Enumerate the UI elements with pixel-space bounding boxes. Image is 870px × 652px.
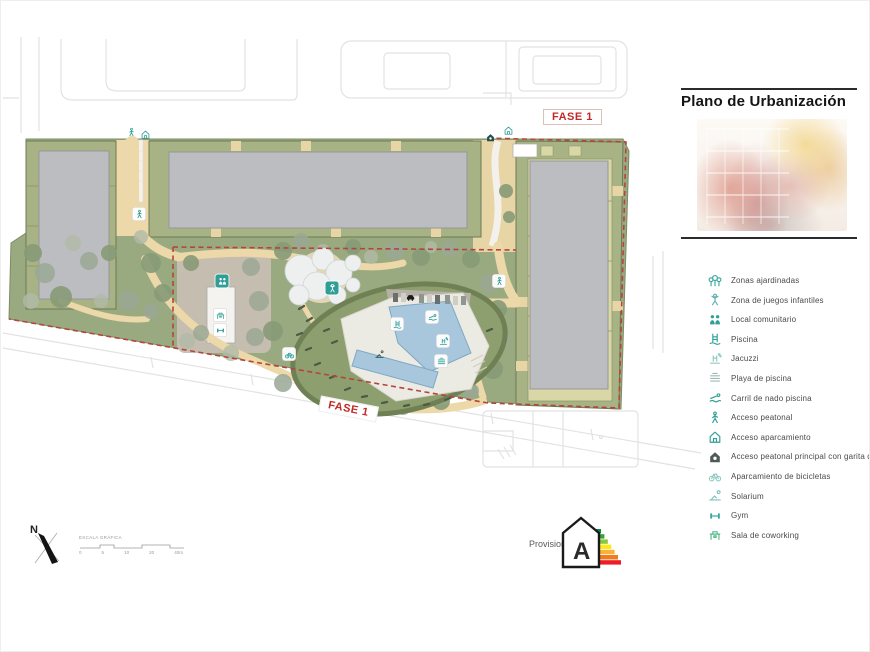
compass-icon: N: [30, 524, 59, 564]
pedestrian-icon: [125, 126, 138, 139]
legend-item-label: Local comunitario: [731, 315, 796, 324]
legend-item-label: Acceso aparcamiento: [731, 433, 811, 442]
legend-item: Piscina: [707, 332, 867, 347]
trees-icon: [707, 273, 722, 288]
bike-parking-icon: [707, 469, 722, 484]
swim-lane-icon: [426, 311, 439, 324]
energy-rating-letter: A: [573, 538, 590, 565]
playground-icon: [326, 282, 339, 295]
community-icon: [707, 312, 722, 327]
legend-item: Aparcamiento de bicicletas: [707, 469, 867, 484]
legend-item-label: Carril de nado piscina: [731, 394, 812, 403]
pool-ladder-icon: [391, 318, 404, 331]
legend-item-label: Aparcamiento de bicicletas: [731, 472, 831, 481]
legend-item: Zona de juegos infantiles: [707, 293, 867, 308]
title-rule-bottom: [681, 237, 857, 239]
building-top: [149, 141, 481, 237]
legend-item: Sala de coworking: [707, 528, 867, 543]
scale-tick: 10: [124, 550, 129, 555]
legend-item-label: Gym: [731, 511, 748, 520]
fase1-label-top: FASE 1: [543, 109, 602, 125]
pedestrian-icon: [707, 410, 722, 425]
pool-beach-icon: [707, 371, 722, 386]
scale-tick: 20: [149, 550, 154, 555]
playground-icon: [707, 293, 722, 308]
legend-item-label: Jacuzzi: [731, 354, 759, 363]
legend-item-label: Piscina: [731, 335, 758, 344]
building-left: [26, 141, 116, 309]
bike-parking-icon: [283, 348, 296, 361]
legend-item: Acceso peatonal: [707, 410, 867, 425]
parking-access-icon: [502, 124, 515, 137]
solarium-icon: [707, 489, 722, 504]
legend-item: Solarium: [707, 489, 867, 504]
legend-item: Playa de piscina: [707, 371, 867, 386]
legend-item-label: Acceso peatonal: [731, 413, 792, 422]
legend-item-label: Playa de piscina: [731, 374, 792, 383]
legend-item-label: Zonas ajardinadas: [731, 276, 799, 285]
legend-item-label: Solarium: [731, 492, 764, 501]
car-icon: [404, 291, 417, 304]
legend-item: Jacuzzi: [707, 351, 867, 366]
legend-item-label: Acceso peatonal principal con garita de …: [731, 452, 870, 461]
legend-item: Local comunitario: [707, 312, 867, 327]
parking-access-icon: [707, 430, 722, 445]
scale-tick: 0: [79, 550, 82, 555]
solarium-icon: [373, 348, 386, 361]
scale-tick: 5: [102, 550, 105, 555]
pedestrian-icon: [133, 208, 146, 221]
legend-item-label: Zona de juegos infantiles: [731, 296, 824, 305]
coworking-icon: [214, 309, 227, 322]
pool-ladder-icon: [707, 332, 722, 347]
scale-bar: ESCALA GRÁFICA 05102040m: [79, 535, 189, 555]
legend: Zonas ajardinadasZona de juegos infantil…: [707, 273, 867, 547]
legend-item: Zonas ajardinadas: [707, 273, 867, 288]
legend-item: Acceso peatonal principal con garita de …: [707, 449, 867, 464]
gatehouse-icon: [707, 449, 722, 464]
pedestrian-icon: [493, 275, 506, 288]
scale-bar-graphic: [79, 540, 185, 550]
jacuzzi-icon: [707, 351, 722, 366]
compass-north-label: N: [30, 524, 38, 536]
jacuzzi-icon: [437, 335, 450, 348]
panel-title: Plano de Urbanización: [681, 93, 846, 110]
gatehouse-icon: [484, 131, 497, 144]
community-icon: [216, 275, 229, 288]
title-rule-top: [681, 88, 857, 90]
building-right: [513, 141, 623, 409]
gym-icon: [707, 508, 722, 523]
legend-item-label: Sala de coworking: [731, 531, 799, 540]
parking-access-icon: [139, 128, 152, 141]
gym-icon: [214, 324, 227, 337]
energy-rating-icon: A: [559, 515, 621, 573]
coworking-icon: [707, 528, 722, 543]
page: N FASE 1 FASE 1 Plano de Urbanización Zo…: [0, 0, 870, 652]
pool-beach-icon: [435, 355, 448, 368]
legend-item: Carril de nado piscina: [707, 391, 867, 406]
scale-bar-ticks: 05102040m: [79, 550, 183, 555]
project-render-image: [697, 119, 847, 231]
legend-item: Acceso aparcamiento: [707, 430, 867, 445]
legend-item: Gym: [707, 508, 867, 523]
scale-tick: 40m: [174, 550, 183, 555]
swim-lane-icon: [707, 391, 722, 406]
